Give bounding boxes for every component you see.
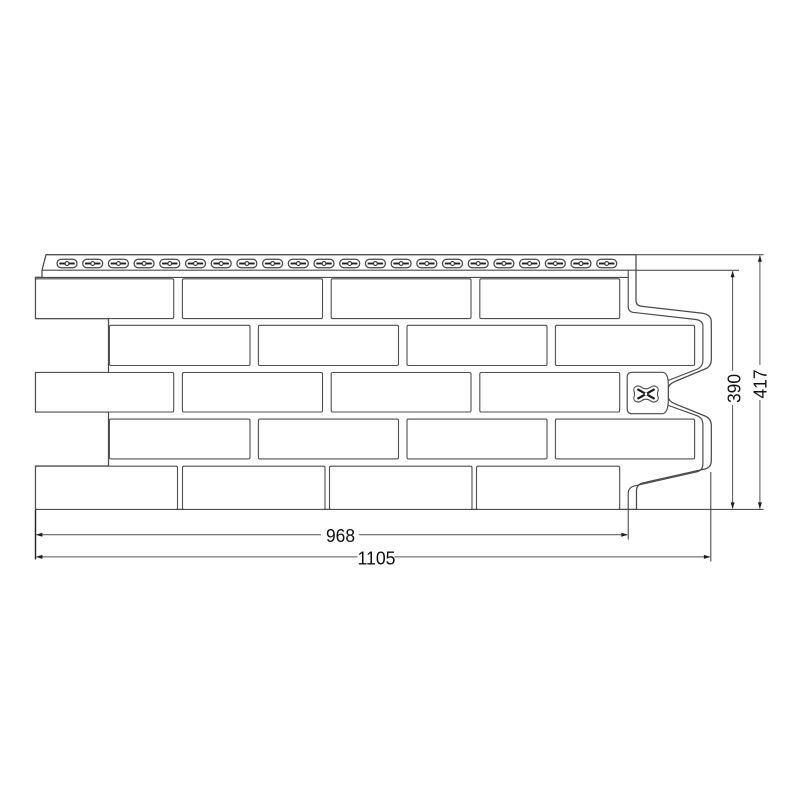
- svg-text:390: 390: [724, 374, 745, 403]
- svg-text:1105: 1105: [358, 547, 396, 568]
- svg-text:417: 417: [750, 370, 771, 399]
- svg-text:968: 968: [326, 525, 355, 546]
